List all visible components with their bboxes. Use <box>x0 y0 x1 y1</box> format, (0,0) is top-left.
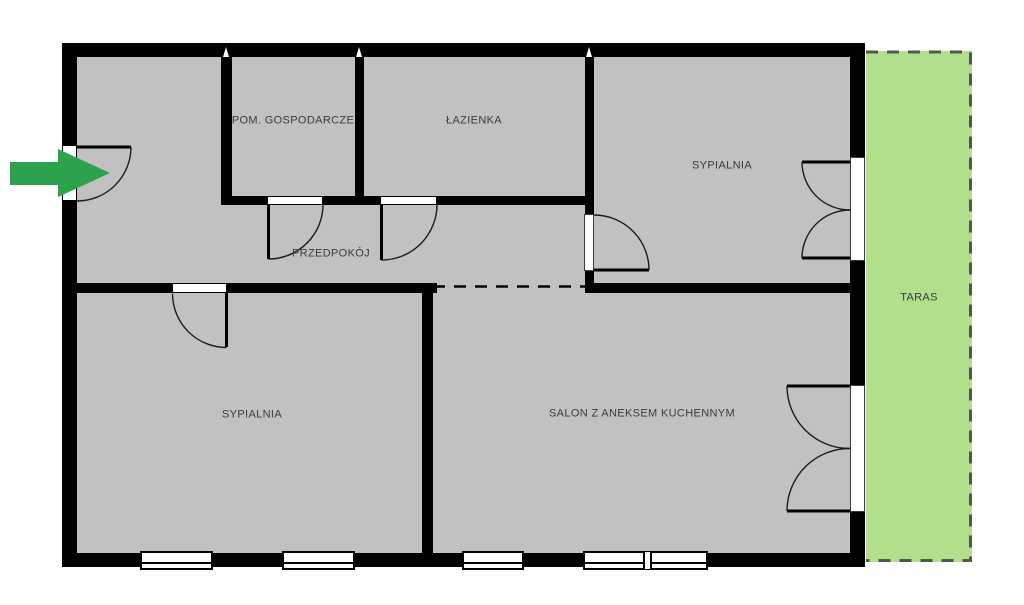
room-label-utility: POM. GOSPODARCZE <box>232 116 354 127</box>
room-label-bedroom-bottom: SYPIALNIA <box>222 410 282 421</box>
room-label-living-room: SALON Z ANEKSEM KUCHENNYM <box>549 409 735 420</box>
wall-top <box>62 43 865 57</box>
wall-joint-notch <box>356 47 362 57</box>
wall-left <box>62 43 77 567</box>
room-label-bathroom: ŁAZIENKA <box>446 116 502 127</box>
door-opening-bathroom <box>380 196 437 205</box>
door-opening-bedroom-top <box>584 214 594 271</box>
window-bedroom-1 <box>140 551 213 570</box>
door-opening-utility <box>267 196 323 205</box>
wall-utility-bathroom <box>355 57 364 205</box>
wall-hall-utility <box>221 57 232 205</box>
window-living-double <box>583 551 708 570</box>
window-divider <box>643 552 652 569</box>
entrance-door-opening <box>62 145 77 201</box>
door-opening-bedroom-bottom <box>172 283 227 293</box>
french-door-opening-bedroom <box>850 157 865 261</box>
room-label-terrace: TARAS <box>900 293 938 304</box>
wall-hallway-south <box>62 283 437 293</box>
window-bedroom-2 <box>282 551 355 570</box>
floor-plan: POM. GOSPODARCZE ŁAZIENKA SYPIALNIA PRZE… <box>0 0 1024 605</box>
room-label-bedroom-top: SYPIALNIA <box>692 161 752 172</box>
window-mullion <box>463 562 523 564</box>
french-door-opening-living <box>850 385 865 512</box>
wall-bedroom2-living <box>422 283 433 567</box>
window-mullion <box>141 562 212 564</box>
terrace-area <box>866 51 972 562</box>
wall-bedroom-living <box>585 283 865 293</box>
window-living-1 <box>462 551 524 570</box>
wall-joint-notch <box>223 47 229 57</box>
room-label-hallway: PRZEDPOKÓJ <box>292 249 370 260</box>
window-mullion <box>283 562 354 564</box>
wall-joint-notch <box>586 47 592 57</box>
